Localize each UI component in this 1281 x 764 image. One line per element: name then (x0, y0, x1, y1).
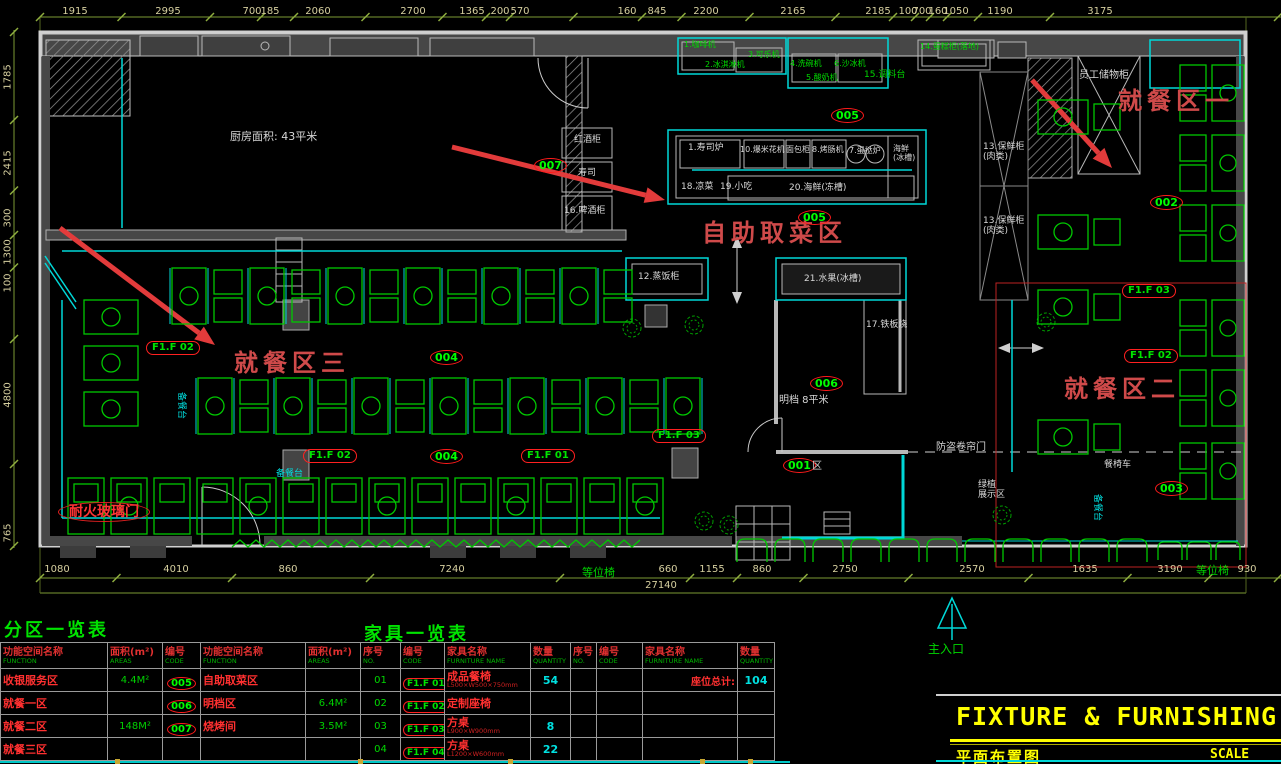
empty-cell (597, 715, 643, 738)
furniture-header: 数量QUANTITY (738, 643, 775, 669)
furniture-header: 家具名称FURNITURE NAME (643, 643, 738, 669)
table-row: 就餐一区 006 明档区 6.4M² (1, 692, 361, 715)
empty-cell (571, 692, 597, 715)
furniture-no: 02 (361, 692, 401, 715)
empty-cell (738, 715, 775, 738)
furniture-table: 序号NO. 编号CODE 家具名称FURNITURE NAME 数量QUANTI… (360, 642, 775, 761)
dining-zone-outline (996, 283, 1246, 567)
marker-dot (115, 759, 120, 764)
callout-arrows (60, 80, 1112, 345)
empty-cell (597, 669, 643, 692)
furniture-code: F1.F 04 (401, 738, 445, 761)
furniture-code: F1.F 01 (401, 669, 445, 692)
empty-cell (571, 715, 597, 738)
zone-name: 就餐三区 (1, 738, 108, 761)
zone-area (306, 738, 361, 761)
title-block-divider (936, 694, 1281, 696)
zone-area: 6.4M² (306, 692, 361, 715)
zone-area: 4.4M² (108, 669, 163, 692)
zone-code: 006 (163, 692, 201, 715)
table-row: 03 F1.F 03 方桌L900×W900mm 8 (361, 715, 775, 738)
furniture-name: 方桌L1200×W600mm (445, 738, 531, 761)
marker-dot (748, 759, 753, 764)
zone-area: 3.5M² (306, 715, 361, 738)
table-row: 01 F1.F 01 成品餐椅L500×W500×750mm 54 座位总计: … (361, 669, 775, 692)
zone-header: 功能空间名称FUNCTION (201, 643, 306, 669)
zone-name: 明档区 (201, 692, 306, 715)
furniture-name: 成品餐椅L500×W500×750mm (445, 669, 531, 692)
furniture-no: 01 (361, 669, 401, 692)
empty-cell (597, 738, 643, 761)
furniture-header: 编号CODE (597, 643, 643, 669)
zone-header: 面积(m²)AREAS (108, 643, 163, 669)
zone-table: 功能空间名称FUNCTION 面积(m²)AREAS 编号CODE 功能空间名称… (0, 642, 361, 761)
empty-cell (738, 738, 775, 761)
furniture-qty: 22 (531, 738, 571, 761)
seat-total-value: 104 (738, 669, 775, 692)
zone-code: 005 (163, 669, 201, 692)
furniture-qty: 8 (531, 715, 571, 738)
furniture-header: 家具名称FURNITURE NAME (445, 643, 531, 669)
plants (623, 313, 1055, 534)
empty-cell (643, 738, 738, 761)
title-underline (950, 744, 1281, 745)
zone-area (306, 669, 361, 692)
furniture-header: 序号NO. (361, 643, 401, 669)
zone-code: 007 (163, 715, 201, 738)
marker-dot (508, 759, 513, 764)
furniture-header: 数量QUANTITY (531, 643, 571, 669)
zone-name (201, 738, 306, 761)
zone-area (108, 738, 163, 761)
furniture-qty (531, 692, 571, 715)
title-block-divider (936, 760, 1281, 762)
zone-header: 面积(m²)AREAS (306, 643, 361, 669)
furniture-code: F1.F 02 (401, 692, 445, 715)
marker-dot (358, 759, 363, 764)
marker-dot (700, 759, 705, 764)
furniture-header: 序号NO. (571, 643, 597, 669)
zone-name: 就餐二区 (1, 715, 108, 738)
table-row: 04 F1.F 04 方桌L1200×W600mm 22 (361, 738, 775, 761)
furniture-no: 04 (361, 738, 401, 761)
zone-name: 就餐一区 (1, 692, 108, 715)
furniture-name: 定制座椅 (445, 692, 531, 715)
furniture-header: 编号CODE (401, 643, 445, 669)
furniture-qty: 54 (531, 669, 571, 692)
drawing-title-en: FIXTURE & FURNISHING P (956, 702, 1281, 731)
main-entrance-arrow (938, 598, 966, 640)
title-underline (950, 739, 1281, 742)
empty-cell (571, 738, 597, 761)
zone-name: 烧烤间 (201, 715, 306, 738)
walls (40, 32, 1246, 558)
furniture-no: 03 (361, 715, 401, 738)
table-row: 就餐三区 (1, 738, 361, 761)
empty-cell (738, 692, 775, 715)
table-row: 收银服务区 4.4M² 005 自助取菜区 (1, 669, 361, 692)
zone-area: 148M² (108, 715, 163, 738)
zone-name: 收银服务区 (1, 669, 108, 692)
table-row: 02 F1.F 02 定制座椅 (361, 692, 775, 715)
zone-table-title: 分区一览表 (4, 616, 109, 642)
empty-cell (597, 692, 643, 715)
empty-cell (643, 692, 738, 715)
empty-cell (571, 669, 597, 692)
furniture-name: 方桌L900×W900mm (445, 715, 531, 738)
zone-header: 编号CODE (163, 643, 201, 669)
cad-floor-plan: 1915299570018520602700136520057016084522… (0, 0, 1281, 764)
zone-name: 自助取菜区 (201, 669, 306, 692)
empty-cell (643, 715, 738, 738)
furniture-code: F1.F 03 (401, 715, 445, 738)
zone-header: 功能空间名称FUNCTION (1, 643, 108, 669)
zone-area (108, 692, 163, 715)
zone-code (163, 738, 201, 761)
seat-total-label: 座位总计: (643, 669, 738, 692)
table-row: 就餐二区 148M² 007 烧烤间 3.5M² (1, 715, 361, 738)
